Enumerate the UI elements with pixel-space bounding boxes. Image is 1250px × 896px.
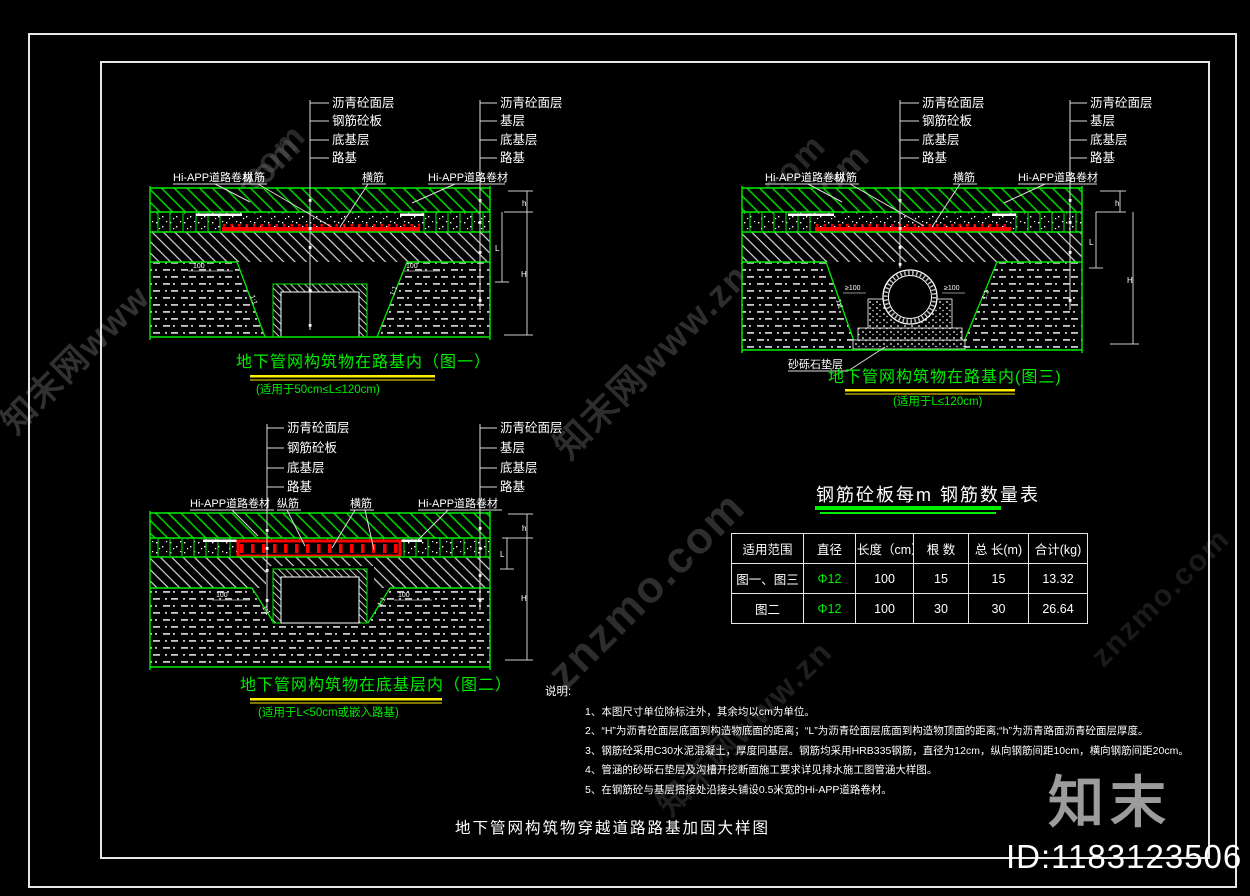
col-header-range: 适用范围: [732, 534, 804, 564]
rebar-table-header-row: 适用范围 直径 长度（cm） 根 数 总 长(m) 合计(kg): [732, 534, 1088, 564]
fig2-base-layer: [150, 539, 490, 557]
fig1-subtitle: (适用于50cm≤L≤120cm): [256, 383, 380, 396]
cell-weight: 13.32: [1029, 564, 1088, 594]
fig1-layer-label-subgrade-r: 路基: [500, 150, 526, 165]
fig2-layer-label-base-r: 基层: [500, 441, 525, 455]
fig3-dim-ge100-left: ≥100: [845, 285, 861, 292]
fig3-dim-ge100-right: ≥100: [944, 285, 960, 292]
fig3-layer-label-subbase-r: 底基层: [1090, 132, 1128, 147]
rebar-table-title-underline2: [820, 512, 996, 514]
cell-total-length: 15: [969, 564, 1029, 594]
fig1-longbar-label: 纵筋: [243, 170, 265, 184]
fig3-membrane-strip-left: [788, 214, 834, 217]
fig1-dim-100-left: 100: [193, 263, 205, 270]
fig2-rc-slab: [238, 541, 400, 556]
cell-diameter: Φ12: [804, 594, 856, 624]
cell-length: 100: [856, 594, 914, 624]
fig1-layer-label-subgrade: 路基: [332, 150, 358, 165]
fig3-layer-label-asphalt-r: 沥青砼面层: [1090, 96, 1153, 110]
col-header-total-length: 总 长(m): [969, 534, 1029, 564]
fig1-box-culvert: [273, 284, 367, 337]
fig1-dim-lines: [495, 191, 533, 335]
fig3-subtitle: (适用于L≤120cm): [893, 395, 983, 408]
fig3-layer-label-base-r: 基层: [1090, 114, 1115, 128]
fig3-title-underline: [845, 389, 1015, 392]
fig3-title-underline2: [845, 394, 1015, 395]
fig1-layer-label-asphalt-r: 沥青砼面层: [500, 96, 563, 110]
fig1-dim-h-label: h: [522, 199, 526, 208]
fig3-title: 地下管网构筑物在路基内(图三): [828, 368, 1062, 386]
fig1-layer-label-asphalt: 沥青砼面层: [332, 96, 395, 110]
cell-weight: 26.64: [1029, 594, 1088, 624]
fig2-layer-label-subbase: 底基层: [287, 460, 325, 475]
fig1-dim-H-label: H: [521, 270, 527, 279]
znzmo-logo: 知末: [1048, 758, 1172, 839]
fig1-subbase-layer: [150, 232, 490, 262]
col-header-length: 长度（cm）: [856, 534, 914, 564]
cell-diameter: Φ12: [804, 564, 856, 594]
fig1-section: 沥青砼面层 钢筋砼板 底基层 路基 沥青砼面层 基层 底基层 路基 Hi-APP…: [100, 85, 580, 415]
fig1-title-underline: [250, 375, 435, 378]
fig3-dim-lines: [1089, 191, 1139, 344]
cell-count: 30: [914, 594, 969, 624]
fig2-dim-L-label: L: [500, 550, 505, 559]
fig1-dim-100-right: 100: [406, 263, 418, 270]
col-header-diameter: 直径: [804, 534, 856, 564]
fig2-dim-h-label: h: [522, 524, 526, 533]
fig2-asphalt-layer: [150, 513, 490, 538]
fig3-layer-label-subbase: 底基层: [922, 132, 960, 147]
fig3-dim-H-label: H: [1127, 276, 1133, 285]
fig1-membrane-label-left: Hi-APP道路卷材: [173, 170, 253, 184]
fig3-membrane-label-left: Hi-APP道路卷材: [765, 170, 845, 184]
col-header-weight: 合计(kg): [1029, 534, 1088, 564]
fig2-layer-label-asphalt: 沥青砼面层: [287, 421, 350, 435]
fig3-layer-label-subgrade: 路基: [922, 150, 948, 165]
drawing-canvas: 知末网www.znzmo.com 知末网www.znzmo.com znzmo.…: [0, 0, 1250, 896]
fig2-dim-lines: [500, 514, 533, 660]
cell-range: 图二: [732, 594, 804, 624]
fig2-crossbar-label: 横筋: [350, 496, 372, 510]
fig2-dim-100-left: 100: [216, 592, 228, 599]
rebar-table: 适用范围 直径 长度（cm） 根 数 总 长(m) 合计(kg) 图一、图三 Φ…: [731, 533, 1088, 624]
fig1-title-underline2: [250, 380, 435, 381]
image-id-label: ID:1183123506: [1006, 838, 1242, 876]
fig3-longbar-label: 纵筋: [835, 170, 857, 184]
fig3-dim-h-label: h: [1115, 199, 1119, 208]
fig2-layer-label-rcslab: 钢筋砼板: [287, 440, 338, 455]
fig3-membrane-strip-right: [992, 214, 1016, 217]
col-header-count: 根 数: [914, 534, 969, 564]
fig3-base-layer: [742, 213, 1082, 232]
fig3-layer-label-rcslab: 钢筋砼板: [922, 113, 973, 128]
fig3-layer-label-subgrade-r: 路基: [1090, 150, 1116, 165]
fig1-base-layer: [150, 213, 490, 232]
table-row: 图一、图三 Φ12 100 15 15 13.32: [732, 564, 1088, 594]
fig3-layer-label-asphalt: 沥青砼面层: [922, 96, 985, 110]
fig3-membrane-label-right: Hi-APP道路卷材: [1018, 170, 1098, 184]
fig3-subbase-layer: [742, 232, 1082, 262]
fig2-layer-label-subbase-r: 底基层: [500, 460, 538, 475]
fig2-layer-label-subgrade-r: 路基: [500, 479, 526, 494]
fig2-membrane-label-right: Hi-APP道路卷材: [418, 496, 498, 510]
fig3-dim-L-label: L: [1089, 238, 1094, 247]
fig2-title: 地下管网构筑物在底基层内（图二）: [240, 676, 512, 694]
fig1-membrane-label-right: Hi-APP道路卷材: [428, 170, 508, 184]
fig3-crossbar-label: 横筋: [953, 170, 975, 184]
cell-range: 图一、图三: [732, 564, 804, 594]
fig1-dim-L-label: L: [495, 244, 500, 253]
cell-count: 15: [914, 564, 969, 594]
fig1-membrane-strip-left: [196, 214, 242, 217]
rebar-table-title: 钢筋砼板每m 钢筋数量表: [816, 481, 1040, 507]
fig1-membrane-strip-right: [400, 214, 424, 217]
fig2-layer-label-subgrade: 路基: [287, 479, 313, 494]
note-item-1: 1、本图尺寸单位除标注外，其余均以cm为单位。: [585, 703, 1210, 723]
fig1-title: 地下管网构筑物在路基内（图一）: [236, 353, 491, 371]
cell-total-length: 30: [969, 594, 1029, 624]
fig1-crossbar-label: 横筋: [362, 170, 384, 184]
rebar-table-title-underline: [815, 506, 1001, 510]
notes-heading: 说明:: [545, 683, 1210, 703]
fig3-asphalt-layer: [742, 188, 1082, 212]
fig2-dim-H-label: H: [521, 594, 527, 603]
fig3-pipe: [883, 270, 937, 324]
fig1-layer-label-subbase: 底基层: [332, 132, 370, 147]
fig2-box-culvert: [273, 569, 367, 623]
fig3-section: 沥青砼面层 钢筋砼板 底基层 路基 沥青砼面层 基层 底基层 路基 Hi-APP…: [690, 85, 1220, 415]
fig2-membrane-label-left: Hi-APP道路卷材: [190, 496, 270, 510]
note-item-2: 2、“H”为沥青砼面层底面到构造物底面的距离；“L”为沥青砼面层底面到构造物顶面…: [585, 722, 1210, 742]
fig2-section: 沥青砼面层 钢筋砼板 底基层 路基 沥青砼面层 基层 底基层 路基 Hi-APP…: [100, 415, 580, 725]
table-row: 图二 Φ12 100 30 30 26.64: [732, 594, 1088, 624]
fig2-subtitle: (适用于L<50cm或嵌入路基): [258, 705, 399, 719]
fig2-longbar-label: 纵筋: [277, 496, 299, 510]
fig2-layer-label-asphalt-r: 沥青砼面层: [500, 421, 563, 435]
drawing-caption: 地下管网构筑物穿越道路路基加固大样图: [455, 816, 770, 838]
fig2-title-underline: [250, 698, 442, 701]
fig1-layer-label-rcslab: 钢筋砼板: [332, 113, 383, 128]
cell-length: 100: [856, 564, 914, 594]
fig1-layer-label-subbase-r: 底基层: [500, 132, 538, 147]
fig2-title-underline2: [250, 703, 442, 704]
fig2-dim-100-right: 100: [398, 592, 410, 599]
fig1-layer-label-base-r: 基层: [500, 114, 525, 128]
